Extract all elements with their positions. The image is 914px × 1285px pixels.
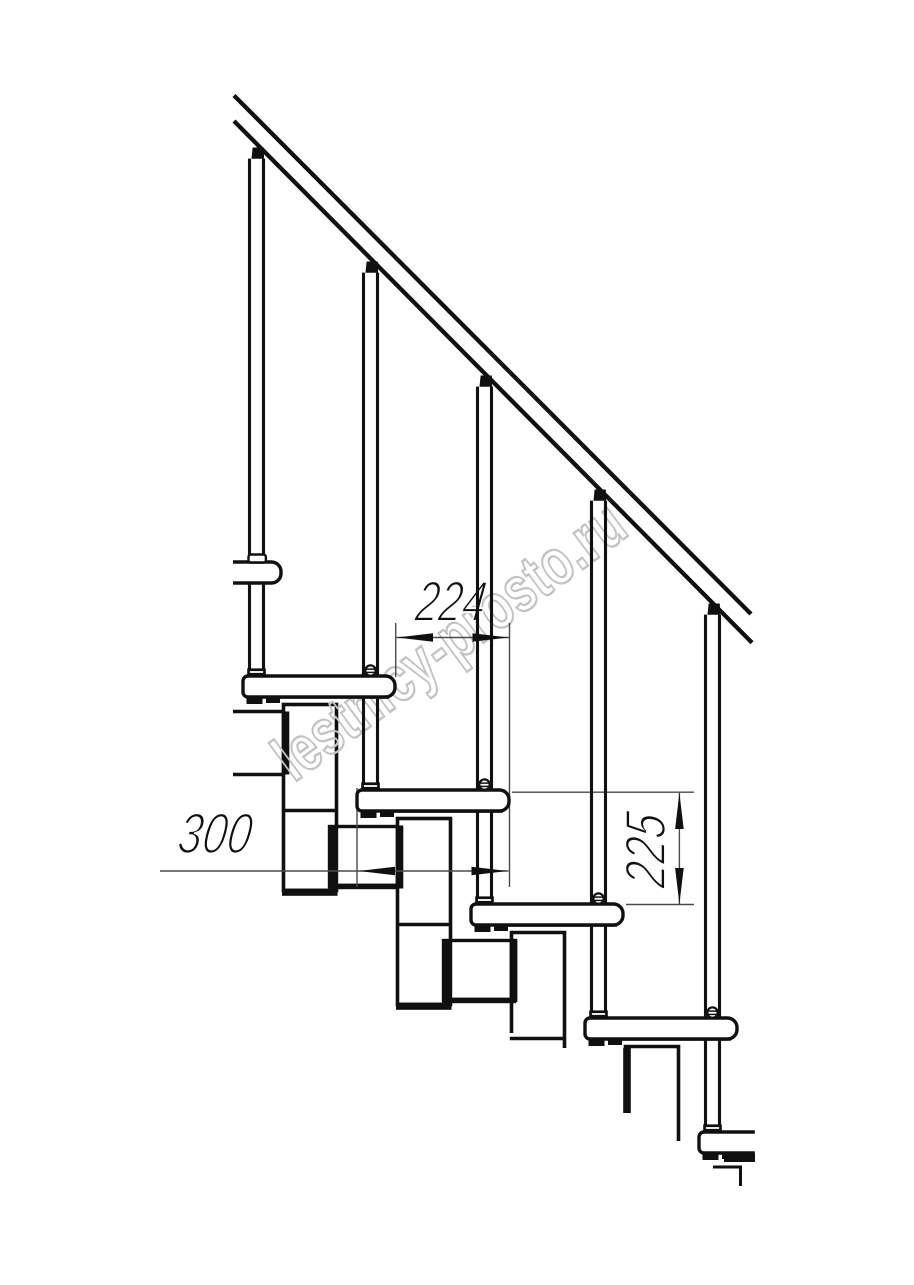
svg-text:300: 300 — [174, 802, 257, 866]
svg-text:225: 225 — [614, 808, 678, 892]
